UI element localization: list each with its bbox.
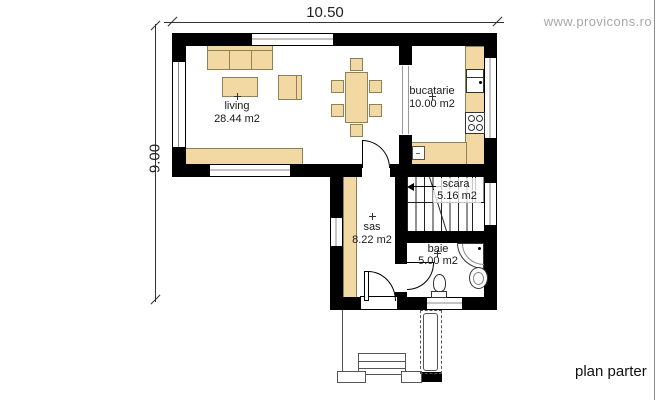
- plan-caption: plan parter: [575, 363, 651, 380]
- stove-burner: [468, 115, 475, 122]
- room-label-living: living: [203, 100, 271, 113]
- watermark: www.provicons.ro: [528, 14, 652, 29]
- stove-burner: [476, 124, 483, 131]
- porch-left-edge: [342, 310, 343, 375]
- shower-head-dot: [478, 247, 481, 250]
- armchair: [278, 75, 302, 100]
- sofa-seat-divider: [229, 50, 230, 69]
- sofa-backrest-line: [208, 50, 272, 51]
- wall-living-bottom-a: [172, 164, 210, 177]
- room-area-bucatarie: 10.00 m2: [398, 98, 466, 111]
- room-label-sas: sas: [350, 221, 394, 234]
- dining-chair: [331, 104, 344, 117]
- toilet-tank: [431, 291, 447, 298]
- room-center-marker: [369, 213, 376, 220]
- sideboard: [183, 148, 303, 165]
- armchair-armrest-line: [296, 76, 297, 99]
- floor-plan: living 28.44 m2 bucatarie 10.00 m2 scara…: [0, 0, 668, 400]
- wall-top-right: [333, 33, 497, 46]
- wall-bottom: [330, 297, 497, 310]
- dimension-line-top: [164, 22, 504, 23]
- wall-hall-stairs-divider: [395, 177, 407, 231]
- dining-chair: [331, 80, 344, 93]
- kitchen-stove: [465, 112, 485, 134]
- porch-column-left: [337, 371, 366, 383]
- window-living-top: [252, 33, 333, 46]
- stove-burner: [476, 115, 483, 122]
- window-hall-left: [330, 218, 343, 246]
- sink-divider-line: [467, 77, 483, 78]
- kitchen-counter-appliance: [412, 146, 425, 160]
- room-label-bucatarie: bucatarie: [398, 85, 466, 98]
- stove-burner: [468, 124, 475, 131]
- stairs-arrowhead-icon: [407, 183, 414, 191]
- window-bath-bottom: [427, 297, 462, 310]
- door-swing-living-hall: [362, 140, 390, 168]
- room-area-scara: 5.16 m2: [433, 190, 481, 203]
- porch-step-line: [359, 368, 405, 369]
- wall-kitchen-divider-bottom: [399, 135, 412, 164]
- dining-chair: [350, 124, 363, 137]
- wall-living-bottom-b: [290, 164, 362, 177]
- window-living-bottom: [210, 164, 290, 177]
- dining-chair: [369, 80, 382, 93]
- window-living-left: [172, 62, 186, 147]
- toilet-bowl: [433, 274, 446, 292]
- page-border-right: [654, 0, 655, 400]
- sofa-seat-divider: [251, 50, 252, 69]
- wall-kitchen-divider-top: [399, 46, 412, 65]
- dimension-height-label: 9.00: [147, 135, 164, 183]
- room-center-marker: [234, 93, 241, 100]
- dining-chair: [369, 104, 382, 117]
- doorway-bath: [395, 264, 407, 292]
- kitchen-counter-right: [465, 46, 485, 165]
- dining-chair: [350, 58, 363, 71]
- entrance-door-swing: [368, 271, 396, 301]
- appliance-mark: [416, 153, 420, 154]
- dining-table: [345, 72, 368, 123]
- room-area-baie: 5.00 m2: [412, 255, 464, 268]
- room-area-living: 28.44 m2: [200, 113, 274, 126]
- wall-top-left: [172, 33, 252, 46]
- sofa: [207, 44, 273, 70]
- room-area-sas: 8.22 m2: [346, 234, 398, 247]
- window-kitchen-right: [484, 58, 497, 138]
- porch-step-line: [359, 361, 405, 362]
- bath-sink: [469, 267, 488, 289]
- sink-faucet-dot: [479, 81, 482, 84]
- wall-stairs-bath: [395, 231, 484, 243]
- kitchen-sink: [466, 69, 484, 93]
- ramp: [423, 313, 438, 371]
- dimension-width-label: 10.50: [295, 4, 355, 21]
- window-stairs-right: [484, 183, 497, 225]
- wall-living-bottom-c: [390, 164, 497, 177]
- bath-sink-basin: [473, 272, 484, 285]
- porch-pad: [401, 371, 422, 383]
- stairs-lower-flight: [407, 202, 473, 231]
